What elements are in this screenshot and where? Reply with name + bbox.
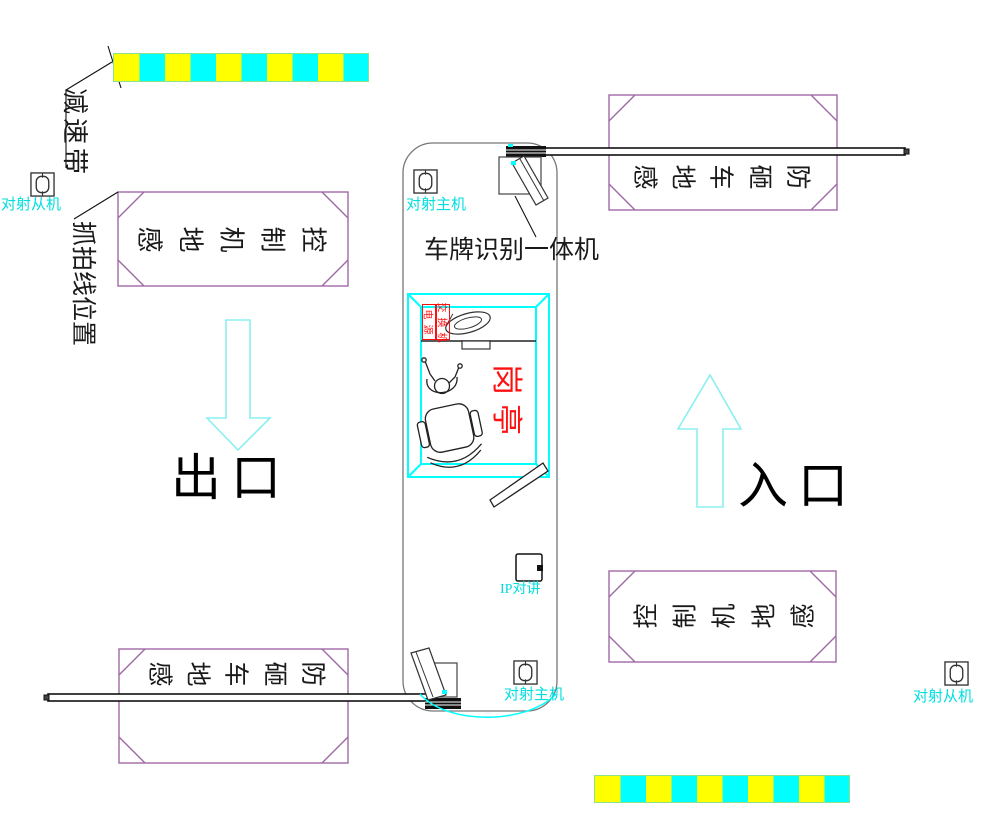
rotated-char: 机 [705, 603, 741, 628]
entry-control-loop-label: 控制机地感 [625, 590, 821, 642]
rotated-char: 车 [220, 661, 256, 686]
beam-slave-icon-right [945, 662, 968, 685]
beam-slave-label-left: 对射从机 [1, 198, 61, 213]
beam-master-label-bottom: 对射主机 [504, 688, 564, 703]
lpr-machine-label: 车牌识别一体机 [424, 238, 599, 263]
rotated-char: 源 [422, 325, 437, 335]
rotated-char: 置 [70, 321, 95, 346]
rotated-char: 砸 [258, 661, 294, 686]
switch-label: 交换机 [436, 304, 450, 340]
rotated-char: 线 [70, 271, 95, 296]
rotated-char: 地 [173, 226, 210, 252]
rotated-char: 换 [436, 317, 451, 327]
rotated-char: 防 [296, 661, 332, 686]
beam-master-icon-bottom [514, 661, 537, 684]
rotated-char: 减 [61, 88, 87, 114]
rotated-char: 车 [705, 164, 741, 189]
rotated-char: 地 [667, 164, 703, 189]
rotated-char: 制 [666, 603, 702, 628]
guard-booth-label: 岗亭 [491, 364, 522, 435]
exit-label: 出口 [171, 453, 291, 503]
speed-bump-top [113, 53, 369, 82]
rotated-char: 防 [781, 164, 817, 189]
rotated-char: 机 [436, 332, 451, 342]
rotated-char: 亭 [491, 404, 522, 435]
entry-direction-arrow [678, 375, 741, 507]
rotated-char: 地 [744, 603, 780, 628]
beam-slave-label-right: 对射从机 [913, 690, 973, 705]
exit-anti-smash-loop-label: 感地车砸防 [145, 650, 331, 698]
rotated-char: 机 [214, 226, 251, 252]
capture-line-label: 抓拍线位置 [70, 221, 95, 346]
exit-control-loop-label: 感地机制控 [130, 214, 336, 264]
rotated-char: 感 [783, 603, 819, 628]
rotated-char: 制 [256, 226, 293, 252]
rotated-char: 岗 [491, 364, 522, 395]
rotated-char: 砸 [743, 164, 779, 189]
parking-gate-layout-diagram: 减速带 对射从机 抓拍线位置 感地机制控 感地车砸防 对射主机 车牌识别一体机 … [0, 0, 984, 823]
rotated-char: 位 [70, 296, 95, 321]
entrance-label: 入口 [738, 461, 858, 511]
beam-master-icon-top [414, 170, 437, 193]
speed-bump-bottom [594, 775, 850, 803]
entry-anti-smash-loop-label: 感地车砸防 [630, 152, 816, 202]
rotated-char: 拍 [70, 246, 95, 271]
beam-slave-icon-left [31, 173, 54, 196]
rotated-char: 控 [297, 226, 334, 252]
rotated-char: 感 [629, 164, 665, 189]
exit-direction-arrow [207, 320, 270, 450]
switch-power-box: 电源 交换机 [422, 304, 450, 340]
rotated-char: 速 [61, 118, 87, 144]
rotated-char: 地 [182, 661, 218, 686]
speed-bump-label: 减速带 [61, 88, 87, 174]
rotated-char: 控 [627, 603, 663, 628]
rotated-char: 交 [436, 302, 451, 312]
rotated-char: 感 [132, 226, 169, 252]
beam-master-label-top: 对射主机 [406, 198, 466, 213]
rotated-char: 抓 [70, 221, 95, 246]
power-label: 电源 [422, 304, 436, 340]
rotated-char: 电 [422, 310, 437, 320]
rotated-char: 感 [144, 661, 180, 686]
ip-intercom-label: IP对讲 [500, 583, 540, 597]
ip-intercom-icon [516, 554, 543, 581]
rotated-char: 带 [61, 148, 87, 174]
